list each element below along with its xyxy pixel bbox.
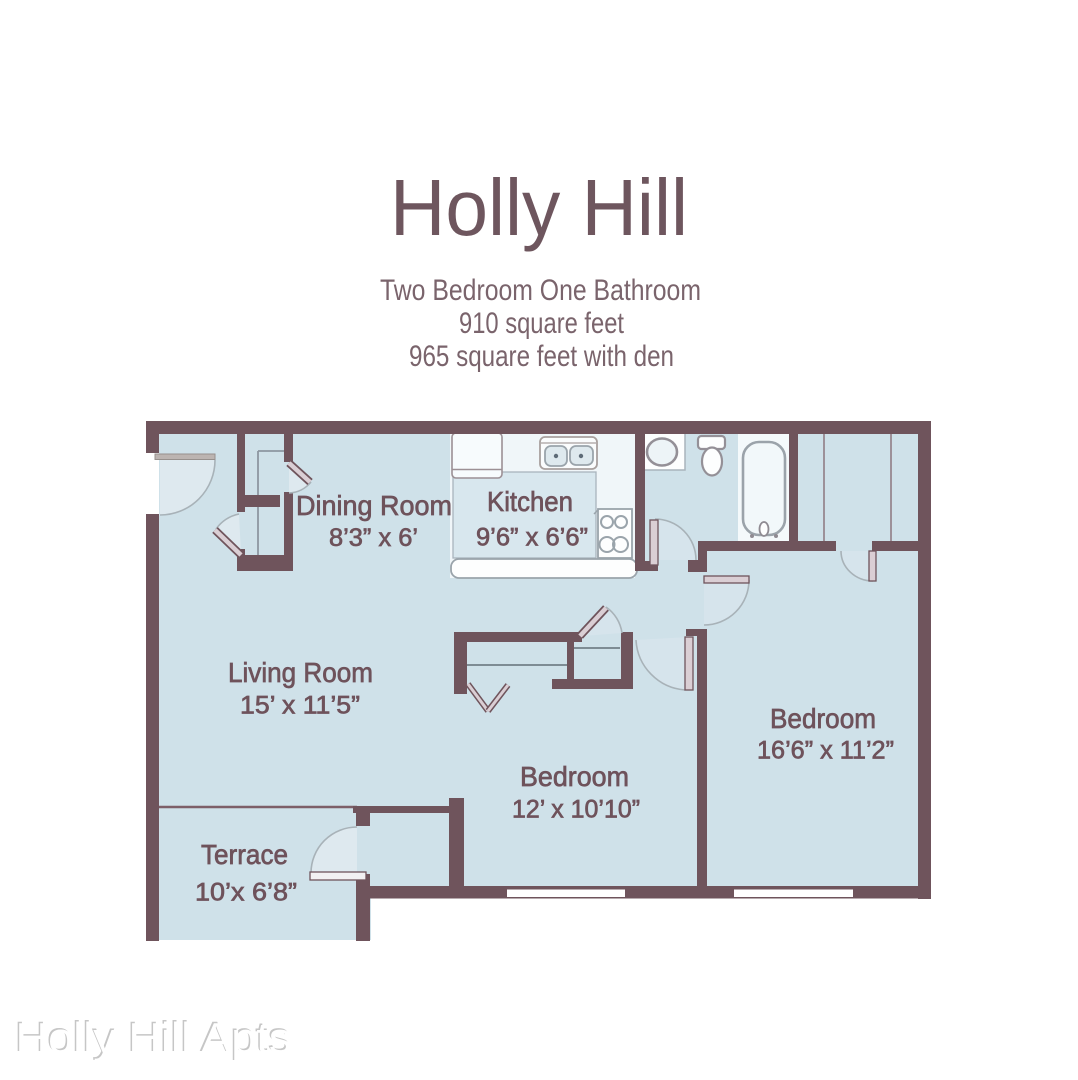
svg-text:8’3” x 6’: 8’3” x 6’ xyxy=(329,524,418,552)
svg-text:Bedroom: Bedroom xyxy=(770,703,876,734)
svg-text:Dining Room: Dining Room xyxy=(296,490,452,521)
svg-text:Holly Hill Apts: Holly Hill Apts xyxy=(16,1015,292,1063)
svg-text:Terrace: Terrace xyxy=(201,839,288,870)
svg-text:15’ x 11’5”: 15’ x 11’5” xyxy=(240,692,360,720)
svg-text:Bedroom: Bedroom xyxy=(520,761,629,792)
svg-text:Living Room: Living Room xyxy=(228,657,373,688)
svg-text:16’6” x 11’2”: 16’6” x 11’2” xyxy=(757,737,894,765)
svg-text:Holly Hill: Holly Hill xyxy=(390,163,688,252)
svg-text:12’ x 10’10”: 12’ x 10’10” xyxy=(512,796,640,824)
svg-text:9’6” x 6’6”: 9’6” x 6’6” xyxy=(476,524,588,552)
svg-text:Kitchen: Kitchen xyxy=(487,486,573,517)
svg-text:Two Bedroom One Bathroom: Two Bedroom One Bathroom xyxy=(380,274,701,307)
svg-text:10’x 6’8”: 10’x 6’8” xyxy=(195,879,297,907)
svg-text:910 square feet: 910 square feet xyxy=(459,307,625,340)
svg-text:965 square feet with den: 965 square feet with den xyxy=(409,340,674,373)
